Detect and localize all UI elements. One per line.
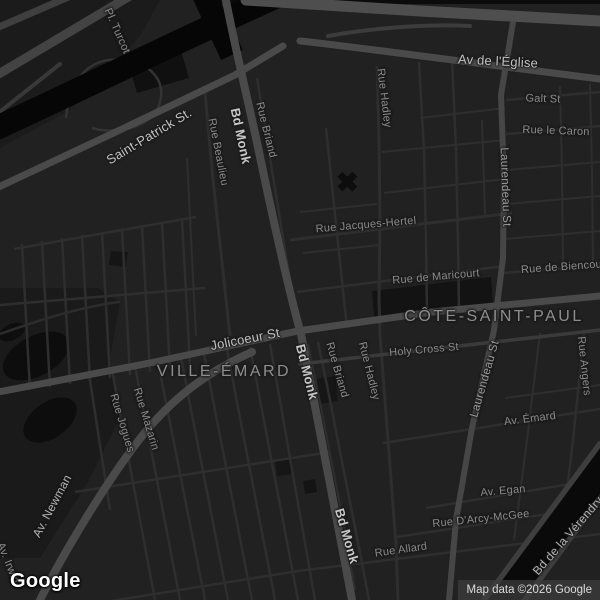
google-logo[interactable]: Google [10, 570, 81, 593]
map-tiles [0, 0, 600, 600]
map-canvas[interactable]: Pl. Turcot Saint-Patrick St. Bd Monk Rue… [0, 0, 600, 600]
map-attribution: Map data ©2026 Google [458, 580, 600, 600]
